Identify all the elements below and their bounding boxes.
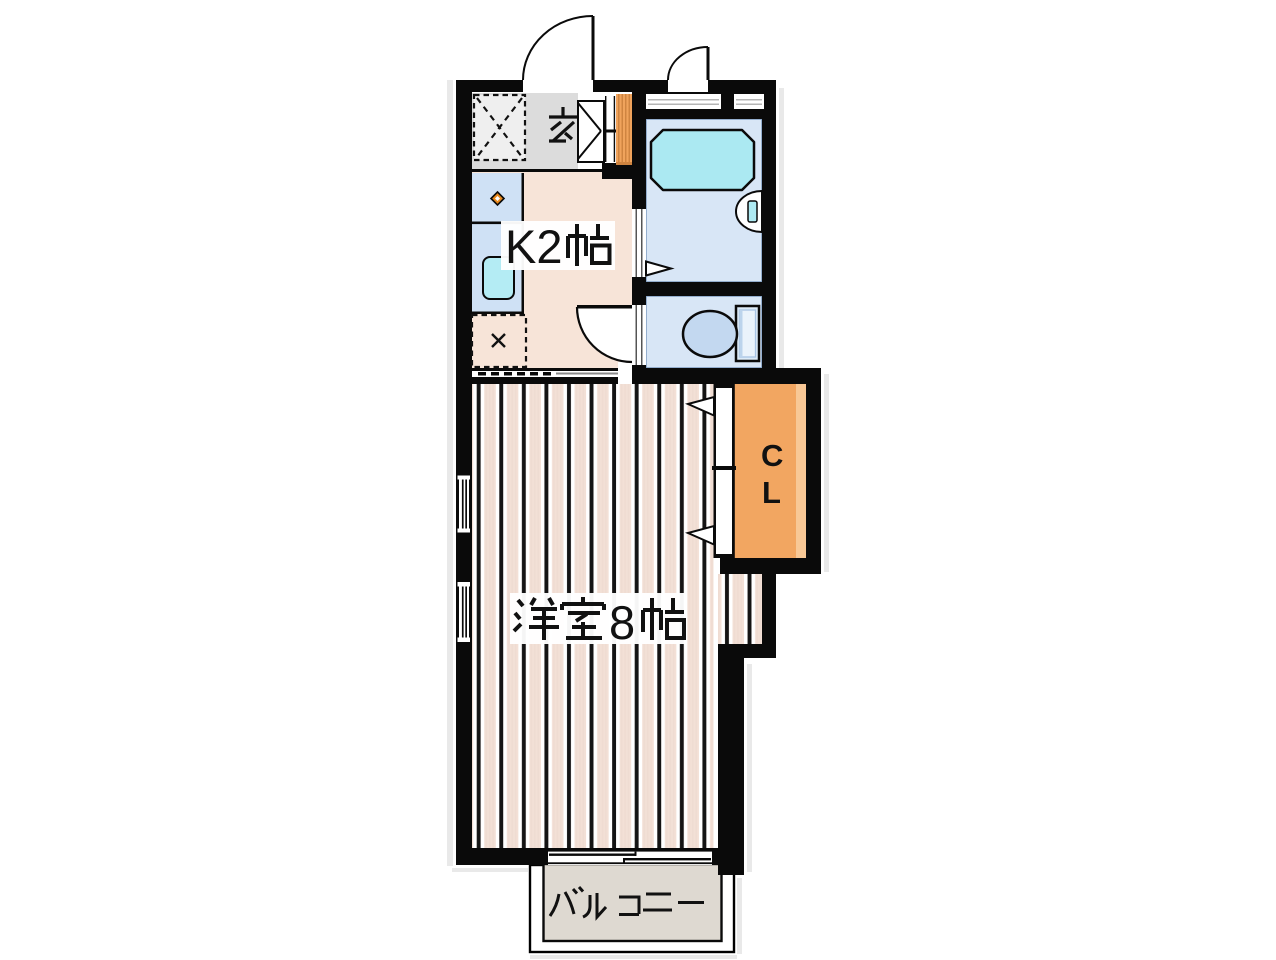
svg-text:K2: K2 <box>505 220 563 273</box>
svg-text:C: C <box>761 438 783 473</box>
svg-text:8: 8 <box>609 596 635 649</box>
svg-text:L: L <box>762 475 781 510</box>
